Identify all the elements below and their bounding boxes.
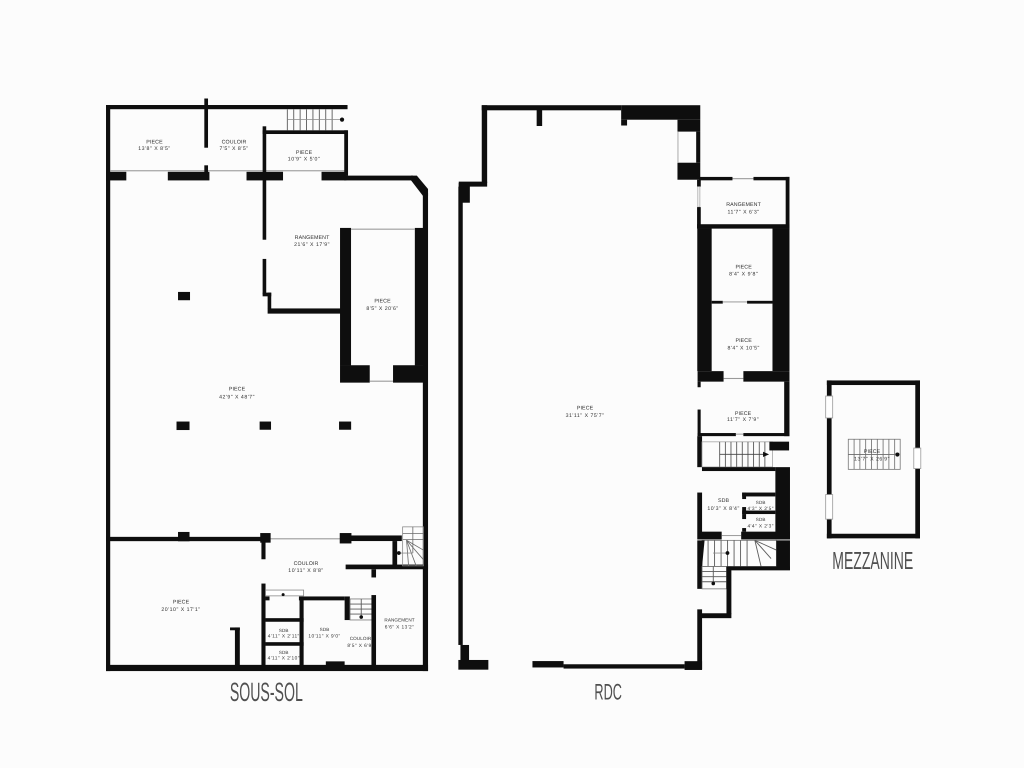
svg-text:RDC: RDC bbox=[594, 679, 622, 704]
svg-text:COULOIR: COULOIR bbox=[294, 561, 319, 567]
svg-text:8'5" X 20'6": 8'5" X 20'6" bbox=[366, 306, 398, 312]
svg-text:PIECE: PIECE bbox=[735, 338, 752, 344]
svg-text:SDB: SDB bbox=[756, 500, 766, 505]
svg-text:PIECE: PIECE bbox=[577, 406, 594, 412]
svg-text:COULOIR: COULOIR bbox=[222, 140, 247, 146]
svg-text:11'7" X 7'9": 11'7" X 7'9" bbox=[727, 417, 759, 423]
svg-text:COULOIR: COULOIR bbox=[350, 636, 372, 641]
svg-text:13'8" X 8'5": 13'8" X 8'5" bbox=[138, 146, 170, 152]
svg-text:SDB: SDB bbox=[320, 627, 330, 632]
svg-text:42'9" X 48'7": 42'9" X 48'7" bbox=[219, 395, 255, 401]
svg-text:SDB: SDB bbox=[279, 650, 289, 655]
svg-text:PIECE: PIECE bbox=[146, 140, 163, 146]
svg-text:4'11" X 2'10": 4'11" X 2'10" bbox=[268, 655, 300, 661]
svg-text:6'6" X 13'2": 6'6" X 13'2" bbox=[385, 625, 414, 631]
svg-text:PIECE: PIECE bbox=[296, 150, 313, 156]
svg-text:10'11" X 8'8": 10'11" X 8'8" bbox=[288, 568, 323, 574]
svg-text:20'10" X 17'1": 20'10" X 17'1" bbox=[161, 607, 200, 613]
svg-text:10'9" X 5'0": 10'9" X 5'0" bbox=[288, 157, 320, 163]
svg-text:SDB: SDB bbox=[718, 498, 730, 504]
svg-text:PIECE: PIECE bbox=[735, 264, 752, 270]
svg-text:10'11" X 9'0": 10'11" X 9'0" bbox=[308, 633, 340, 639]
svg-text:PIECE: PIECE bbox=[735, 411, 752, 417]
svg-text:11'7" X 6'3": 11'7" X 6'3" bbox=[728, 209, 760, 215]
svg-text:10'3" X 8'4": 10'3" X 8'4" bbox=[707, 506, 739, 512]
svg-text:PIECE: PIECE bbox=[864, 449, 881, 455]
svg-text:PIECE: PIECE bbox=[374, 299, 391, 305]
svg-text:8'5" X 6'9": 8'5" X 6'9" bbox=[347, 643, 373, 649]
svg-text:SDB: SDB bbox=[756, 517, 766, 522]
svg-text:8'4" X 9'8": 8'4" X 9'8" bbox=[729, 272, 758, 278]
svg-text:SOUS-SOL: SOUS-SOL bbox=[230, 677, 303, 707]
svg-text:31'11" X 75'7": 31'11" X 75'7" bbox=[566, 413, 605, 419]
svg-text:4'4" X 2'3": 4'4" X 2'3" bbox=[747, 524, 773, 530]
svg-text:RANGEMENT: RANGEMENT bbox=[384, 618, 414, 623]
svg-text:8'4" X 10'5": 8'4" X 10'5" bbox=[727, 345, 759, 351]
svg-text:RANGEMENT: RANGEMENT bbox=[295, 235, 330, 241]
svg-text:PIECE: PIECE bbox=[173, 600, 190, 606]
svg-text:PIECE: PIECE bbox=[229, 387, 246, 393]
svg-text:SDB: SDB bbox=[279, 628, 289, 633]
svg-text:MEZZANINE: MEZZANINE bbox=[832, 548, 913, 575]
svg-text:13'7" X 26'9": 13'7" X 26'9" bbox=[854, 457, 890, 463]
svg-text:4'11" X 2'11": 4'11" X 2'11" bbox=[268, 633, 300, 639]
svg-text:21'6" X 17'9": 21'6" X 17'9" bbox=[294, 242, 330, 248]
svg-text:7'5" X 8'5": 7'5" X 8'5" bbox=[219, 146, 248, 152]
svg-text:RANGEMENT: RANGEMENT bbox=[726, 202, 761, 208]
